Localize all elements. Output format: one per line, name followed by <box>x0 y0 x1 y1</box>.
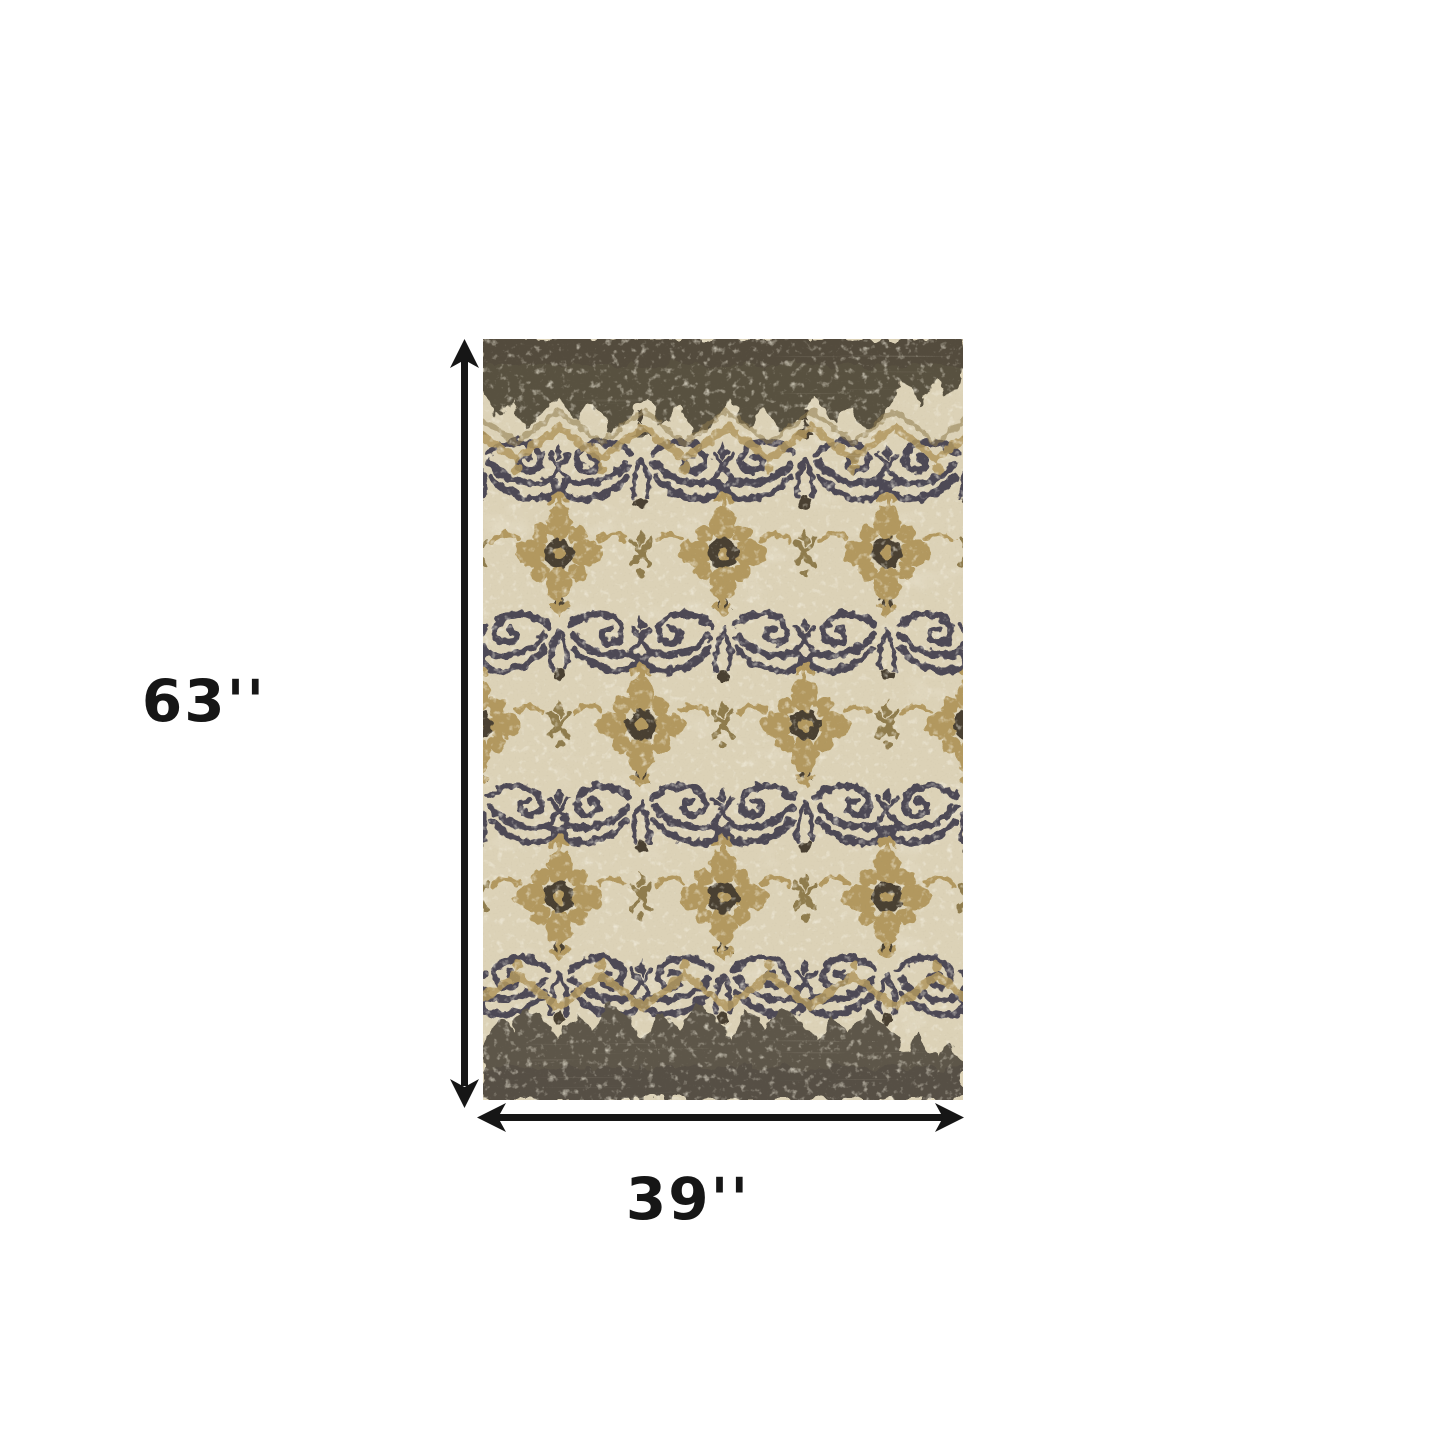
product-dimension-diagram: 63'' 39'' <box>0 0 1445 1445</box>
rug-image <box>483 339 963 1100</box>
width-dimension-label: 39'' <box>626 1165 750 1233</box>
height-dimension-label: 63'' <box>142 667 266 735</box>
width-dimension-arrow <box>473 1100 968 1135</box>
height-dimension-arrow <box>447 336 482 1111</box>
